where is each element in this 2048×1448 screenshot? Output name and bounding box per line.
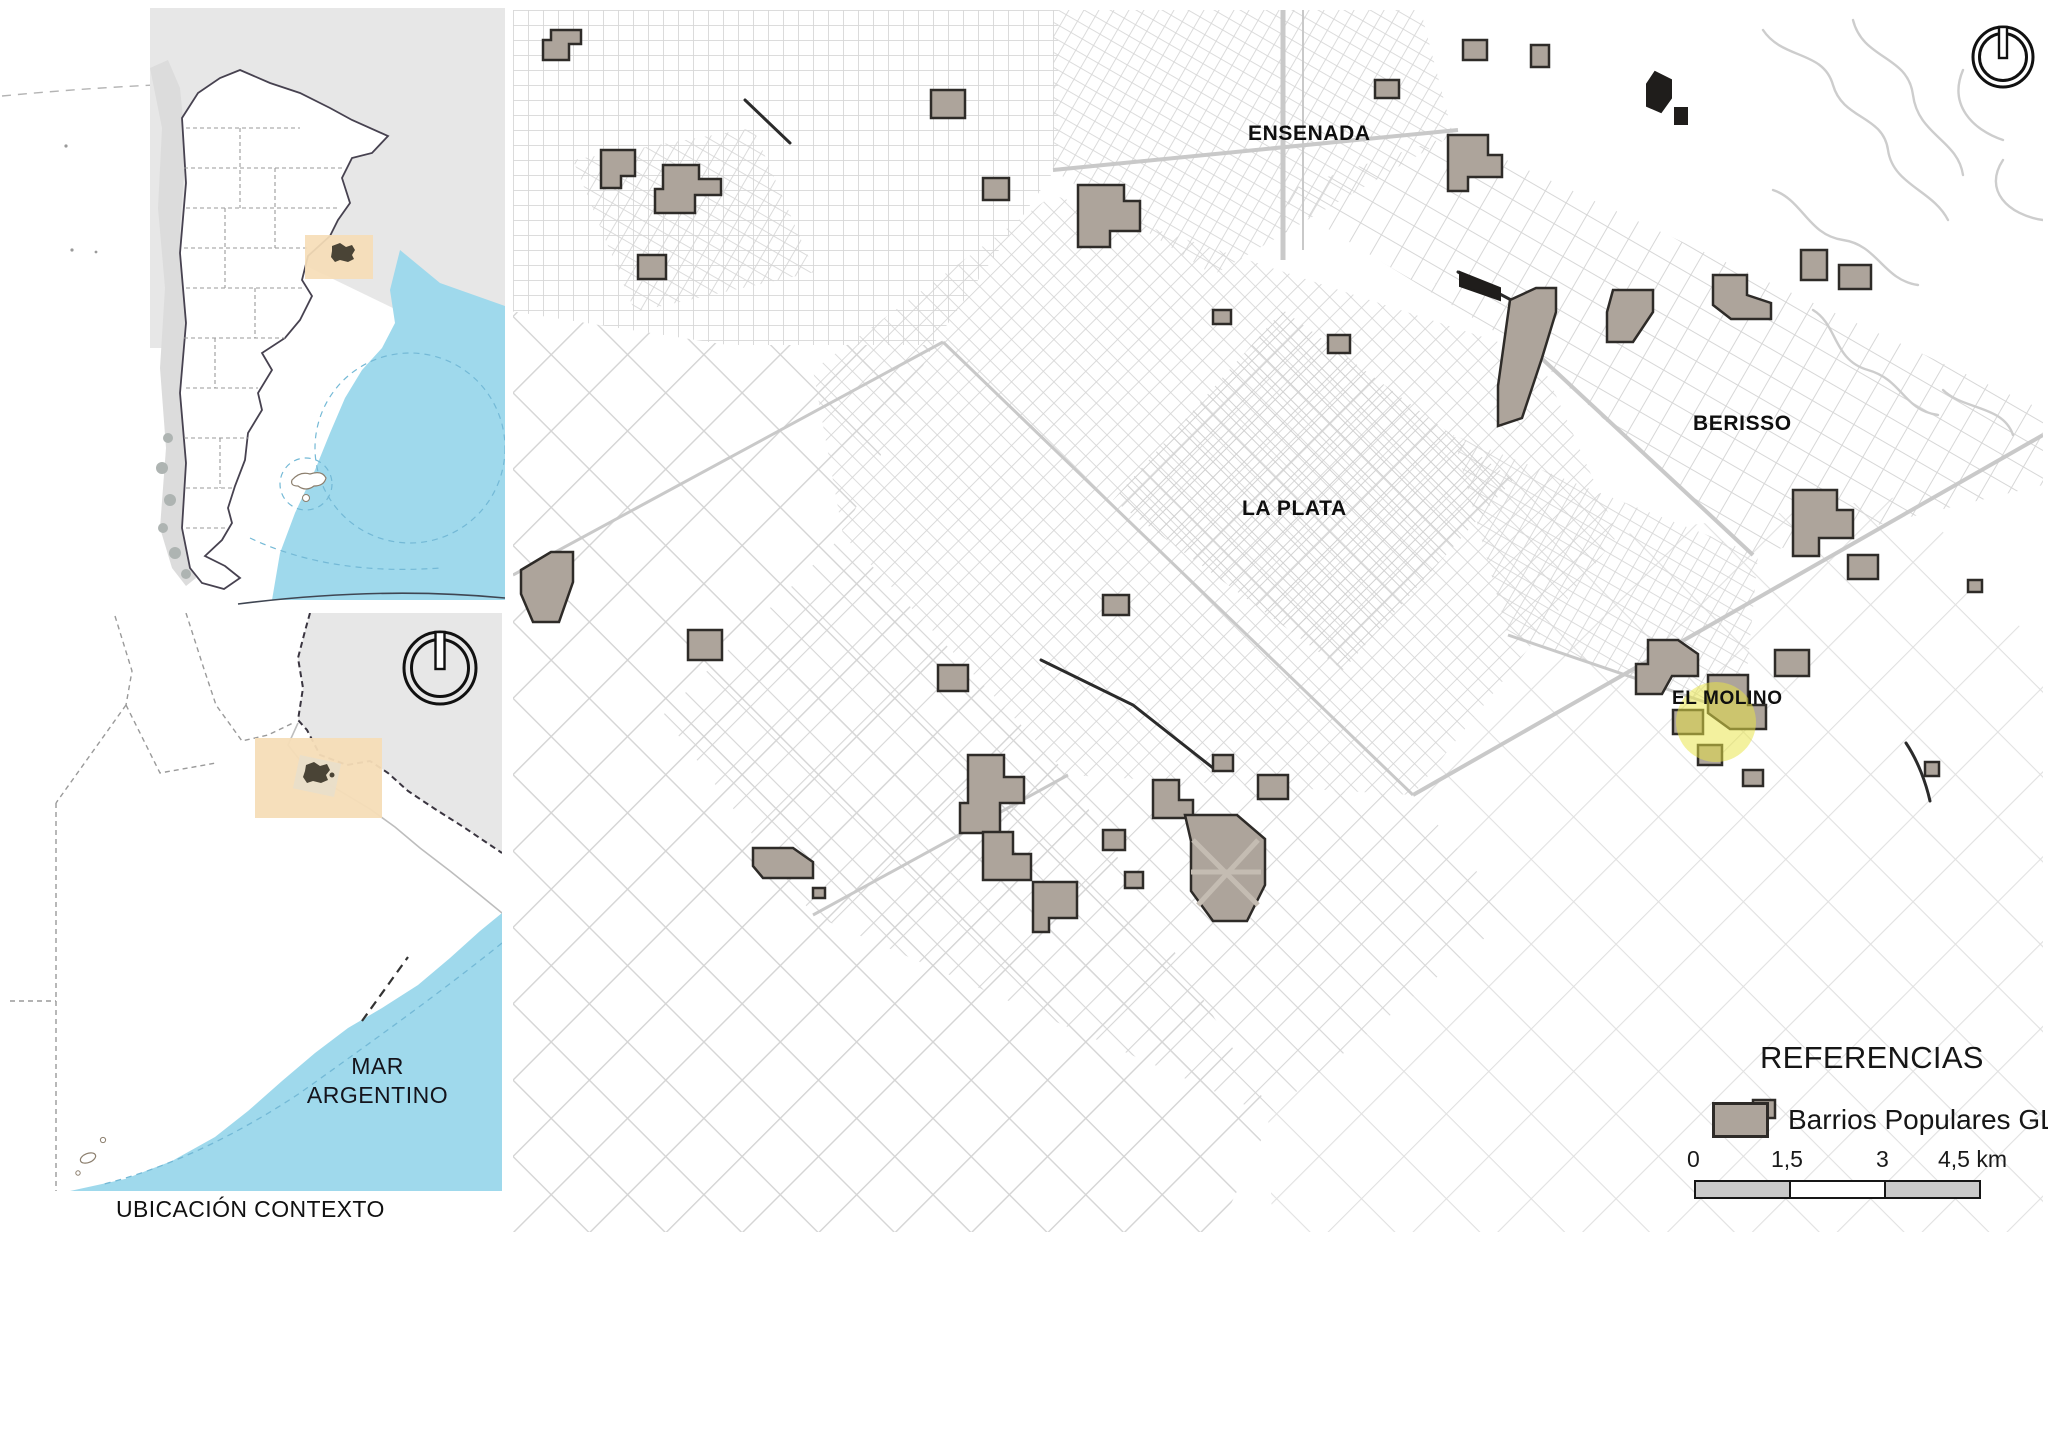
- la-plata-urban-blob: [303, 762, 330, 783]
- map-figure: MAR ARGENTINO UBICACIÓN CONTEXTO: [0, 0, 2048, 1448]
- island-speck: [64, 144, 67, 147]
- province-borders: [10, 613, 293, 1191]
- la-plata-urban-blob: [331, 243, 355, 262]
- sea-label: MAR ARGENTINO: [295, 1052, 460, 1111]
- scale-tick-4-5km: 4,5 km: [1938, 1146, 2007, 1173]
- scale-tick-3: 3: [1876, 1146, 1889, 1173]
- pacific: [0, 350, 148, 608]
- island-speck: [70, 248, 73, 251]
- scale-tick-0: 0: [1687, 1146, 1700, 1173]
- scale-segment: [1884, 1182, 1979, 1197]
- legend-swatch-barrios: [1712, 1102, 1769, 1138]
- scale-tick-1-5: 1,5: [1771, 1146, 1803, 1173]
- country-inset-map: [0, 8, 505, 608]
- city-label-berisso: BERISSO: [1693, 412, 1792, 436]
- scale-segment: [1696, 1182, 1789, 1197]
- scale-bar: [1694, 1180, 1981, 1199]
- north-compass-icon: [1973, 27, 2033, 87]
- urban-dot: [330, 773, 335, 778]
- sea-label-line1: MAR: [295, 1052, 460, 1081]
- area-label-el-molino: EL MOLINO: [1672, 688, 1783, 710]
- legend-title: REFERENCIAS: [1760, 1040, 1984, 1076]
- legend-label-barrios: Barrios Populares GLP: [1788, 1104, 2048, 1136]
- city-label-la-plata: LA PLATA: [1242, 497, 1347, 521]
- city-label-ensenada: ENSENADA: [1248, 122, 1371, 146]
- inset-caption: UBICACIÓN CONTEXTO: [116, 1196, 385, 1223]
- coastal-islands: [76, 1137, 106, 1175]
- island-speck: [95, 251, 98, 254]
- scale-segment: [1789, 1182, 1884, 1197]
- sea-label-line2: ARGENTINO: [295, 1081, 460, 1110]
